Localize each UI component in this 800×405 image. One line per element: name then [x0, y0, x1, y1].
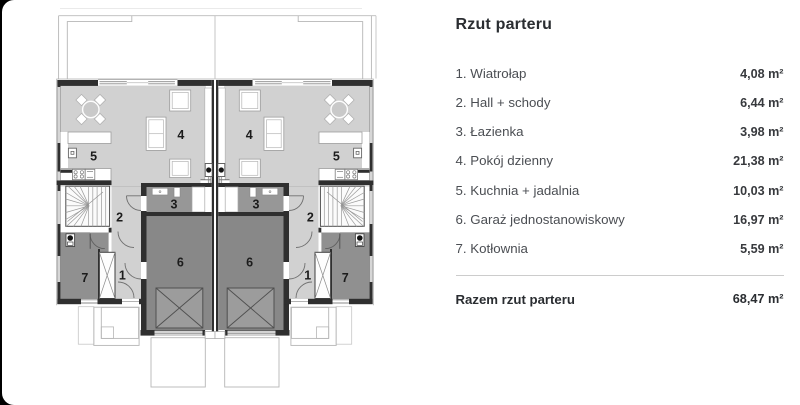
svg-text:2: 2 [307, 210, 314, 224]
svg-text:6: 6 [246, 256, 253, 270]
svg-text:5: 5 [90, 149, 97, 163]
svg-text:7: 7 [342, 271, 349, 285]
svg-text:3: 3 [171, 197, 178, 211]
svg-text:1: 1 [304, 268, 311, 282]
svg-text:4: 4 [246, 128, 253, 142]
svg-text:6: 6 [177, 256, 184, 270]
svg-text:4: 4 [177, 128, 184, 142]
svg-text:1: 1 [119, 268, 126, 282]
svg-text:7: 7 [81, 271, 88, 285]
svg-text:2: 2 [116, 210, 123, 224]
svg-text:3: 3 [253, 197, 260, 211]
svg-text:5: 5 [333, 149, 340, 163]
